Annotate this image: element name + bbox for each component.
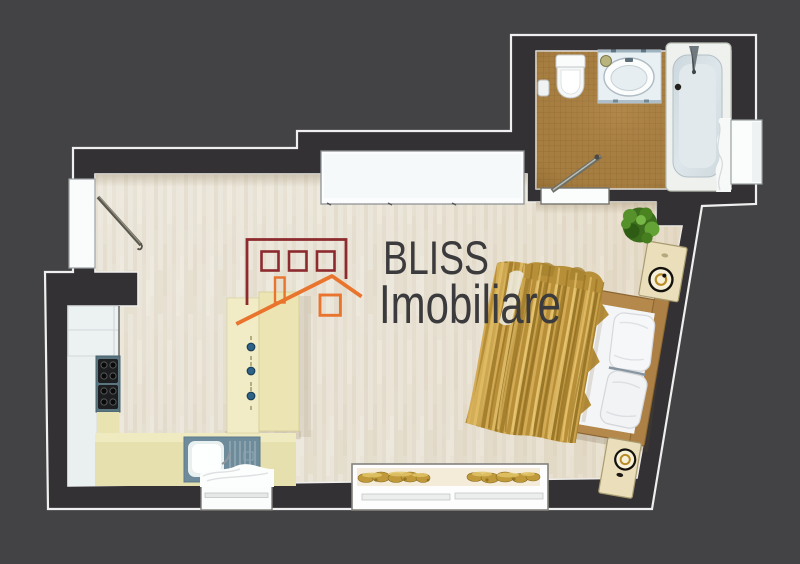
- svg-text:Imobiliare: Imobiliare: [379, 273, 561, 335]
